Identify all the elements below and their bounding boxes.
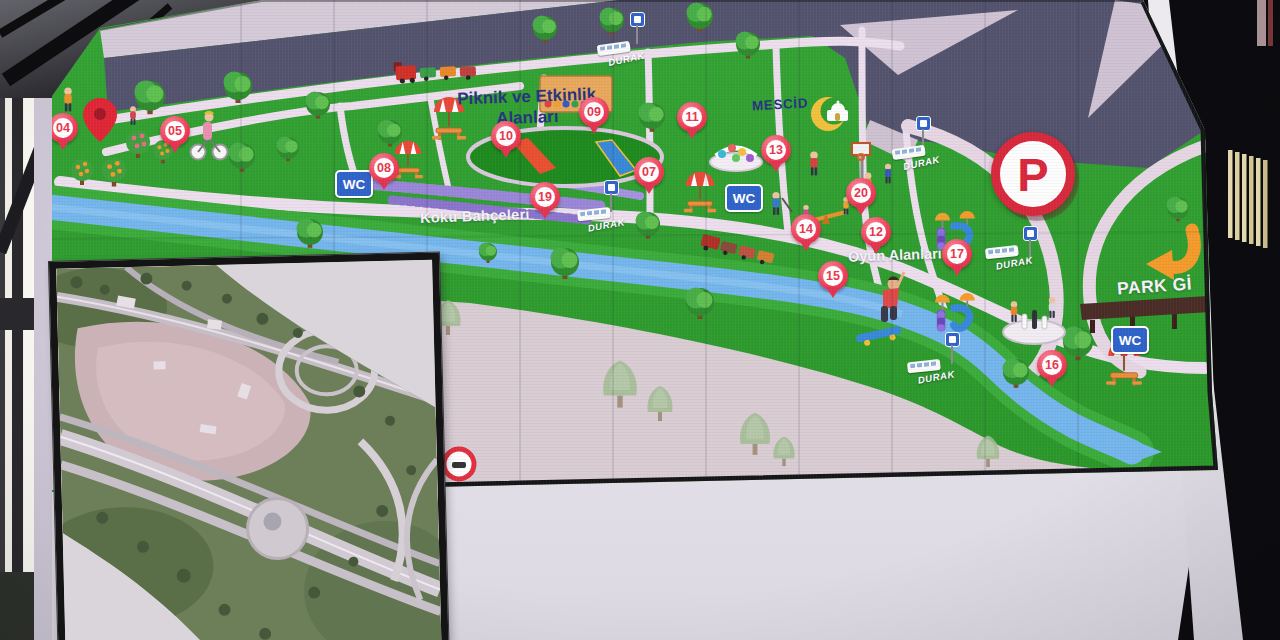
bus-stop-sign-post-2 [916, 116, 931, 131]
bus-stop-2: DURAK [892, 143, 941, 172]
poi-marker-number: 09 [584, 102, 604, 122]
play-areas-label: Oyun Alanları [848, 245, 942, 264]
satellite-inset-panel [49, 252, 449, 640]
poi-marker-number: 04 [53, 118, 73, 138]
aerial-photo [56, 260, 441, 640]
poi-marker-number: 11 [682, 107, 702, 127]
wc-sign-2: WC [725, 184, 763, 212]
poi-marker-15: 15 [818, 261, 848, 291]
poi-marker-16: 16 [1037, 350, 1067, 380]
poi-marker-13: 13 [761, 135, 791, 165]
bus-stop-sign-post-5 [945, 332, 960, 347]
poi-marker-number: 13 [766, 140, 786, 160]
mosque-label: MESCİD [752, 96, 809, 114]
bus-stop-3: DURAK [577, 206, 625, 234]
poi-marker-number: 19 [535, 187, 555, 207]
scent-gardens-label: Koku Bahçeleri [420, 206, 530, 226]
poi-marker-number: 10 [496, 126, 516, 146]
poi-marker-10: 10 [491, 121, 521, 151]
poi-marker-09: 09 [579, 97, 609, 127]
poi-marker-number: 14 [796, 219, 816, 239]
poi-marker-number: 16 [1042, 355, 1062, 375]
poi-marker-number: 20 [851, 183, 871, 203]
poi-marker-number: 08 [374, 158, 394, 178]
wc-sign-1: WC [335, 170, 373, 198]
poi-marker-04: 04 [48, 113, 78, 143]
bus-stop-sign-post-4 [1023, 226, 1038, 241]
photo-of-led-park-map-screen: Piknik ve Etkinlik Alanları Koku Bahçele… [0, 0, 1280, 640]
poi-marker-07: 07 [634, 157, 664, 187]
poi-marker-number: 05 [165, 121, 185, 141]
parking-sign-letter: P [1017, 147, 1048, 202]
poi-marker-20: 20 [846, 178, 876, 208]
poi-marker-number: 15 [823, 266, 843, 286]
poi-marker-05: 05 [160, 116, 190, 146]
parking-sign: P [991, 132, 1075, 216]
bus-stop-sign-post-3 [604, 180, 619, 195]
poi-marker-number: 07 [639, 162, 659, 182]
bus-stop-4: DURAK [985, 244, 1033, 272]
poi-marker-17: 17 [942, 239, 972, 269]
poi-marker-number: 12 [866, 222, 886, 242]
bus-stop-sign-post-1 [630, 12, 645, 27]
bus-stop-5: DURAK [907, 358, 955, 386]
wc-sign-3: WC [1111, 326, 1149, 354]
poi-marker-14: 14 [791, 214, 821, 244]
screen-bezel-left [34, 92, 52, 640]
poi-marker-08: 08 [369, 153, 399, 183]
poi-marker-number: 17 [947, 244, 967, 264]
park-entrance-label: PARK Gİ [1116, 273, 1192, 299]
poi-marker-11: 11 [677, 102, 707, 132]
bus-stop-1: DURAK [597, 39, 646, 68]
poi-marker-19: 19 [530, 182, 560, 212]
